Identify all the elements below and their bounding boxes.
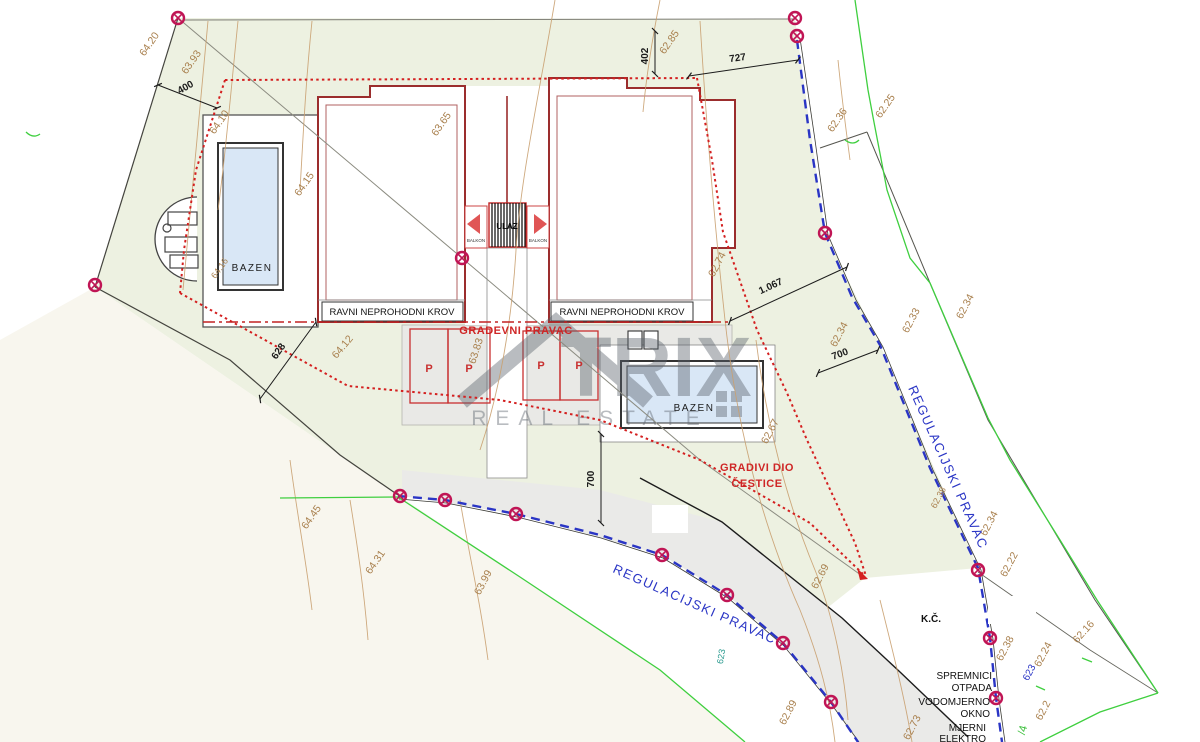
elevation-label: 62.34	[954, 292, 977, 321]
buildable-area-label-1: GRADIVI DIO	[720, 462, 794, 474]
water-meter-label-1: VODOMJERNO	[918, 697, 990, 708]
parking-stall-label: P	[465, 363, 472, 375]
balcony-left-label: BALKON	[467, 238, 485, 243]
cadastral-label: K.Č.	[921, 612, 941, 625]
elevation-label: 62.22	[998, 550, 1021, 579]
parcel-number-teal: 623	[715, 648, 727, 665]
masked-label-patch	[988, 596, 1036, 624]
elevation-label: 62.24	[1032, 640, 1055, 669]
waste-label-1: SPREMNICI	[936, 671, 992, 682]
buildable-area-label-2: ČESTICE	[731, 477, 782, 490]
entrance-label: ULAZ	[496, 222, 517, 231]
waste-label-2: OTPADA	[952, 683, 993, 694]
pool-left-label: BAZEN	[232, 263, 273, 274]
balcony-right-label: BALKON	[529, 238, 547, 243]
elevation-label: 62.2	[1033, 699, 1053, 723]
parking-stall-label: P	[425, 363, 432, 375]
elevation-label: 64.20	[137, 30, 162, 59]
elevation-label: 62.89	[777, 698, 800, 727]
electric-label-1: MJERNI	[949, 723, 986, 734]
dimension-label: 700	[586, 470, 597, 487]
elevation-label: 62.38	[994, 634, 1017, 663]
electric-label-2: ELEKTRO	[939, 734, 986, 742]
dimension-label: 402	[640, 47, 651, 64]
water-meter-label-2: OKNO	[961, 709, 991, 720]
parking-stall-label: P	[575, 360, 582, 372]
pool-right-label: BAZEN	[674, 403, 715, 414]
building-line-label: GRADEVNI PRAVAC	[459, 325, 572, 337]
masked-label-patch	[652, 505, 688, 533]
site-plan-page: TRIX REAL ESTATE	[0, 0, 1200, 742]
elevation-label: 62.33	[900, 306, 923, 335]
elevation-label: 62.16	[1071, 618, 1098, 646]
parcel-fragment-green: /4	[1016, 724, 1030, 736]
parking-stall-label: P	[537, 360, 544, 372]
roof-left-label: RAVNI NEPROHODNI KROV	[330, 307, 456, 318]
site-plan-drawing: TRIX REAL ESTATE	[0, 0, 1200, 742]
building-right	[549, 78, 735, 322]
roof-right-label: RAVNI NEPROHODNI KROV	[560, 307, 686, 318]
elevation-label: 62.25	[873, 92, 898, 121]
